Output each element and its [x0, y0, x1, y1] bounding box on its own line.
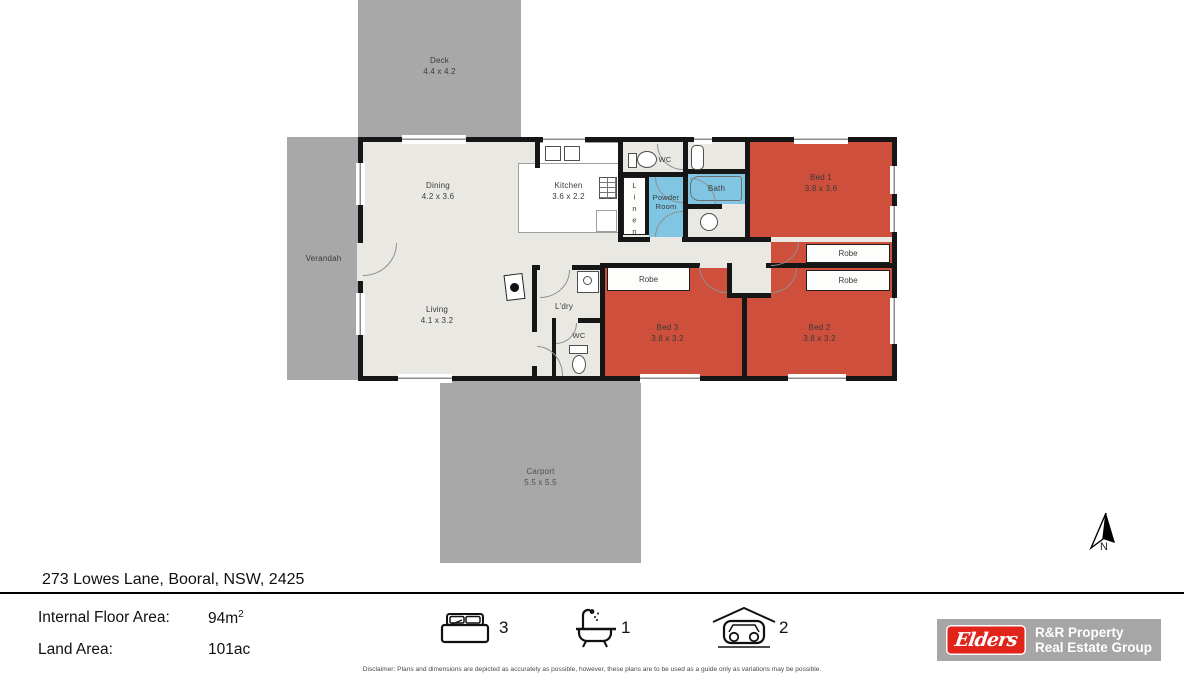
land-area-label: Land Area: — [38, 641, 113, 659]
deck-label: Deck 4.4 x 4.2 — [358, 55, 521, 77]
dining-name: Dining — [363, 180, 513, 191]
bed1-name: Bed 1 — [750, 172, 892, 183]
living-name: Living — [362, 304, 512, 315]
laundry-label: L'dry — [533, 301, 595, 312]
deck-dims: 4.4 x 4.2 — [358, 66, 521, 77]
wc-bottom-label: WC — [557, 331, 601, 340]
window — [794, 135, 848, 144]
north-label: N — [1100, 541, 1108, 553]
agency-name: R&R Property Real Estate Group — [1035, 625, 1152, 656]
land-area-value: 101ac — [208, 641, 250, 659]
laundry-tub-icon — [583, 276, 592, 285]
agency-logo: Elders R&R Property Real Estate Group — [937, 619, 1161, 661]
powder-room-label: Powder Room — [649, 193, 683, 211]
dining-label: Dining 4.2 x 3.6 — [363, 180, 513, 202]
window — [543, 135, 585, 144]
bath-icon — [574, 607, 618, 649]
verandah-name: Verandah — [287, 253, 360, 264]
robe-label: Robe — [838, 249, 857, 258]
wall — [572, 265, 603, 270]
agency-line1: R&R Property — [1035, 625, 1152, 641]
window — [890, 206, 899, 232]
carport-dims: 5.5 x 5.5 — [440, 477, 641, 488]
car-count: 2 — [779, 618, 788, 638]
wc-top-label: WC — [650, 155, 680, 164]
toilet-icon — [569, 345, 588, 354]
kitchen-dims: 3.6 x 2.2 — [518, 191, 619, 202]
area-sup: 2 — [238, 609, 244, 620]
window — [788, 374, 846, 383]
robe-bed1: Robe — [806, 244, 890, 263]
wall — [532, 265, 540, 270]
address: 273 Lowes Lane, Booral, NSW, 2425 — [42, 571, 304, 589]
linen-label: Linen — [630, 181, 639, 233]
bed2-name: Bed 2 — [747, 322, 892, 333]
wall — [727, 293, 771, 298]
verandah-label: Verandah — [287, 253, 360, 264]
window — [640, 374, 700, 383]
bed-icon — [440, 612, 490, 648]
bed2-dims: 3.8 x 3.2 — [747, 333, 892, 344]
wall — [688, 204, 722, 209]
living-label: Living 4.1 x 3.2 — [362, 304, 512, 326]
bed2-label: Bed 2 3.8 x 3.2 — [747, 322, 892, 344]
divider — [0, 592, 1184, 594]
bed1-label: Bed 1 3.8 x 3.6 — [750, 172, 892, 194]
toilet-icon — [628, 153, 637, 168]
kitchen-sink-icon — [564, 146, 580, 161]
wc-name: WC — [557, 331, 601, 340]
robe-bed3: Robe — [607, 267, 690, 291]
wall — [603, 263, 700, 268]
kitchen-label: Kitchen 3.6 x 2.2 — [518, 180, 619, 202]
bath-name: Bath — [688, 183, 745, 194]
elders-logo-text: Elders — [954, 629, 1019, 651]
robe-label: Robe — [838, 276, 857, 285]
bed3-name: Bed 3 — [605, 322, 730, 333]
living-dims: 4.1 x 3.2 — [362, 315, 512, 326]
kitchen-pantry — [596, 210, 617, 232]
wall — [682, 237, 748, 242]
powder-room-name: Powder Room — [649, 193, 683, 211]
window — [402, 135, 466, 144]
window — [398, 374, 452, 383]
kitchen-name: Kitchen — [518, 180, 619, 191]
wall — [532, 265, 537, 332]
area-value: 94m — [208, 610, 238, 627]
disclaimer: Disclaimer: Plans and dimensions are dep… — [0, 666, 1184, 673]
bath-label: Bath — [688, 183, 745, 194]
bath-count: 1 — [621, 618, 630, 638]
elders-logo: Elders — [946, 625, 1026, 655]
internal-floor-area-label: Internal Floor Area: — [38, 609, 170, 627]
carport-name: Carport — [440, 466, 641, 477]
internal-floor-area-value: 94m2 — [208, 609, 244, 628]
window — [694, 135, 712, 144]
shower-tub-icon — [691, 145, 704, 170]
laundry-name: L'dry — [533, 301, 595, 312]
bed-count: 3 — [499, 618, 508, 638]
agency-line2: Real Estate Group — [1035, 640, 1152, 656]
car-icon — [710, 605, 778, 651]
robe-label: Robe — [639, 275, 658, 284]
bed3-label: Bed 3 3.8 x 3.2 — [605, 322, 730, 344]
kitchen-sink-icon — [545, 146, 561, 161]
deck-name: Deck — [358, 55, 521, 66]
basin-icon — [700, 213, 718, 231]
wall — [745, 237, 771, 242]
bed3-dims: 3.8 x 3.2 — [605, 333, 730, 344]
toilet-icon — [572, 355, 586, 374]
fireplace-icon — [503, 273, 525, 301]
robe-bed2: Robe — [806, 270, 890, 291]
wall — [578, 318, 603, 323]
wall — [535, 142, 540, 168]
carport-label: Carport 5.5 x 5.5 — [440, 466, 641, 488]
wc-name: WC — [650, 155, 680, 164]
dining-dims: 4.2 x 3.6 — [363, 191, 513, 202]
floorplan-page: Robe Robe Robe — [0, 0, 1184, 675]
bed1-dims: 3.8 x 3.6 — [750, 183, 892, 194]
